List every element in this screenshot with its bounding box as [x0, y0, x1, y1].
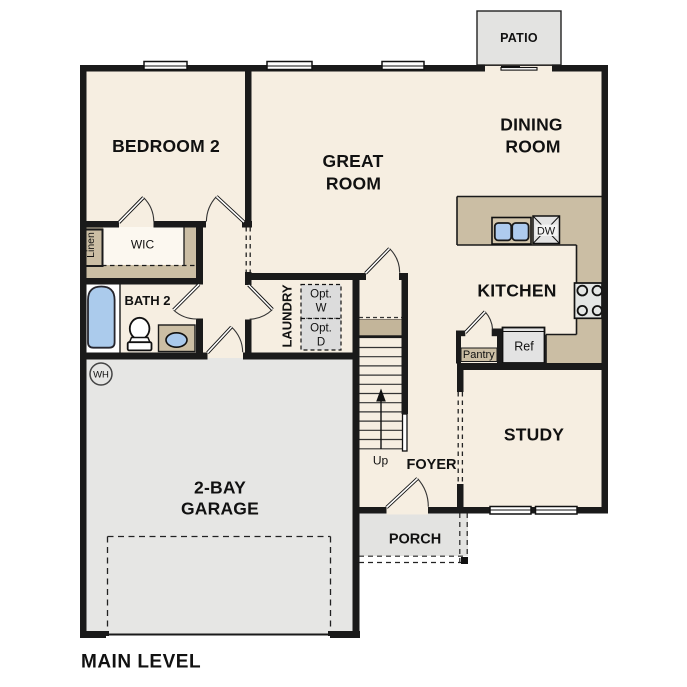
svg-text:LAUNDRY: LAUNDRY: [280, 284, 295, 347]
svg-text:PATIO: PATIO: [500, 31, 538, 45]
svg-text:W: W: [316, 303, 327, 315]
svg-text:Opt.: Opt.: [310, 289, 332, 301]
svg-text:DINING: DINING: [500, 115, 562, 135]
svg-text:D: D: [317, 337, 325, 349]
svg-text:2-BAY: 2-BAY: [194, 478, 246, 498]
svg-text:Linen: Linen: [85, 232, 97, 258]
svg-text:Opt.: Opt.: [310, 323, 332, 335]
svg-text:MAIN LEVEL: MAIN LEVEL: [81, 652, 201, 673]
svg-text:PORCH: PORCH: [389, 532, 441, 548]
svg-text:ROOM: ROOM: [505, 137, 560, 157]
svg-text:BEDROOM 2: BEDROOM 2: [112, 136, 220, 156]
svg-text:BATH 2: BATH 2: [125, 293, 171, 308]
svg-text:Up: Up: [373, 454, 389, 468]
svg-text:STUDY: STUDY: [504, 425, 564, 445]
svg-text:KITCHEN: KITCHEN: [477, 281, 556, 301]
svg-text:Ref: Ref: [514, 340, 534, 354]
svg-text:FOYER: FOYER: [407, 457, 457, 473]
svg-text:ROOM: ROOM: [326, 174, 381, 194]
svg-text:DW: DW: [537, 226, 556, 238]
svg-text:GARAGE: GARAGE: [181, 499, 259, 519]
svg-text:Pantry: Pantry: [463, 349, 495, 361]
svg-text:WH: WH: [93, 370, 109, 381]
svg-text:WIC: WIC: [131, 238, 155, 252]
svg-text:GREAT: GREAT: [323, 151, 384, 171]
